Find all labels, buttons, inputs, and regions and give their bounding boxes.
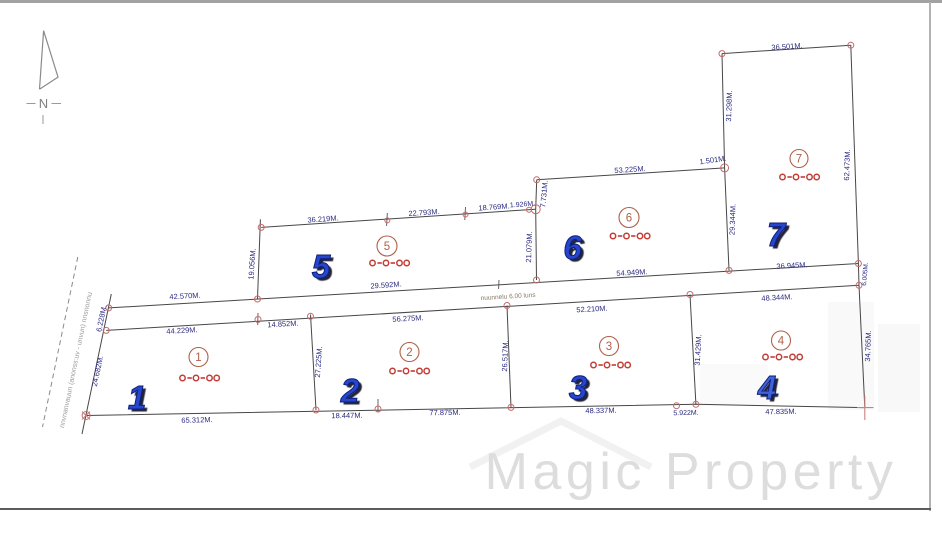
svg-text:54.949M.: 54.949M.: [616, 267, 648, 278]
svg-text:48.337M.: 48.337M.: [585, 406, 616, 416]
svg-text:7.731M.: 7.731M.: [538, 180, 549, 208]
svg-text:29.592M.: 29.592M.: [370, 279, 402, 290]
svg-text:6: 6: [626, 213, 632, 225]
svg-text:52.210M.: 52.210M.: [576, 304, 608, 315]
svg-text:53.225M.: 53.225M.: [614, 164, 646, 175]
svg-text:6.005M.: 6.005M.: [861, 262, 870, 286]
svg-text:31.298M.: 31.298M.: [724, 90, 734, 122]
svg-text:18.447M.: 18.447M.: [331, 411, 362, 421]
svg-text:1: 1: [195, 352, 201, 364]
svg-text:47.835M.: 47.835M.: [765, 407, 796, 417]
svg-text:4: 4: [778, 336, 785, 348]
svg-text:48.344M.: 48.344M.: [761, 292, 793, 303]
svg-text:44.229M.: 44.229M.: [166, 325, 198, 336]
svg-text:24.682M.: 24.682M.: [90, 355, 105, 387]
svg-text:34.765M.: 34.765M.: [863, 330, 873, 362]
svg-text:77.875M.: 77.875M.: [429, 408, 460, 418]
svg-text:31.429M.: 31.429M.: [693, 334, 704, 366]
svg-text:Magic Property: Magic Property: [485, 443, 898, 501]
svg-text:7: 7: [796, 154, 802, 166]
svg-text:42.570M.: 42.570M.: [169, 291, 201, 302]
svg-text:36.945M.: 36.945M.: [776, 260, 808, 271]
svg-text:62.473M.: 62.473M.: [842, 149, 852, 181]
svg-text:21.079M.: 21.079M.: [524, 231, 534, 263]
svg-text:19.056M.: 19.056M.: [246, 248, 257, 280]
svg-text:5.922M.: 5.922M.: [673, 410, 698, 417]
svg-text:3: 3: [606, 341, 612, 353]
svg-text:N: N: [39, 96, 48, 111]
svg-text:22.793M.: 22.793M.: [408, 207, 440, 218]
svg-text:36.501M.: 36.501M.: [771, 41, 803, 52]
svg-text:56.275M.: 56.275M.: [392, 313, 424, 324]
svg-text:14.852M.: 14.852M.: [267, 319, 299, 330]
svg-text:29.344M.: 29.344M.: [727, 204, 737, 236]
svg-text:26.517M.: 26.517M.: [500, 340, 510, 372]
svg-text:nnvnanvauun (anonss:uv - unvun: nnvnanvauun (anonss:uv - unvun) nnsnonnu: [59, 291, 94, 428]
svg-text:5: 5: [384, 241, 390, 253]
svg-text:27.225M.: 27.225M.: [313, 346, 324, 378]
svg-text:nuunnelu 6.00 luns: nuunnelu 6.00 luns: [480, 292, 536, 302]
svg-text:2: 2: [406, 347, 412, 359]
svg-text:65.312M.: 65.312M.: [181, 415, 213, 425]
